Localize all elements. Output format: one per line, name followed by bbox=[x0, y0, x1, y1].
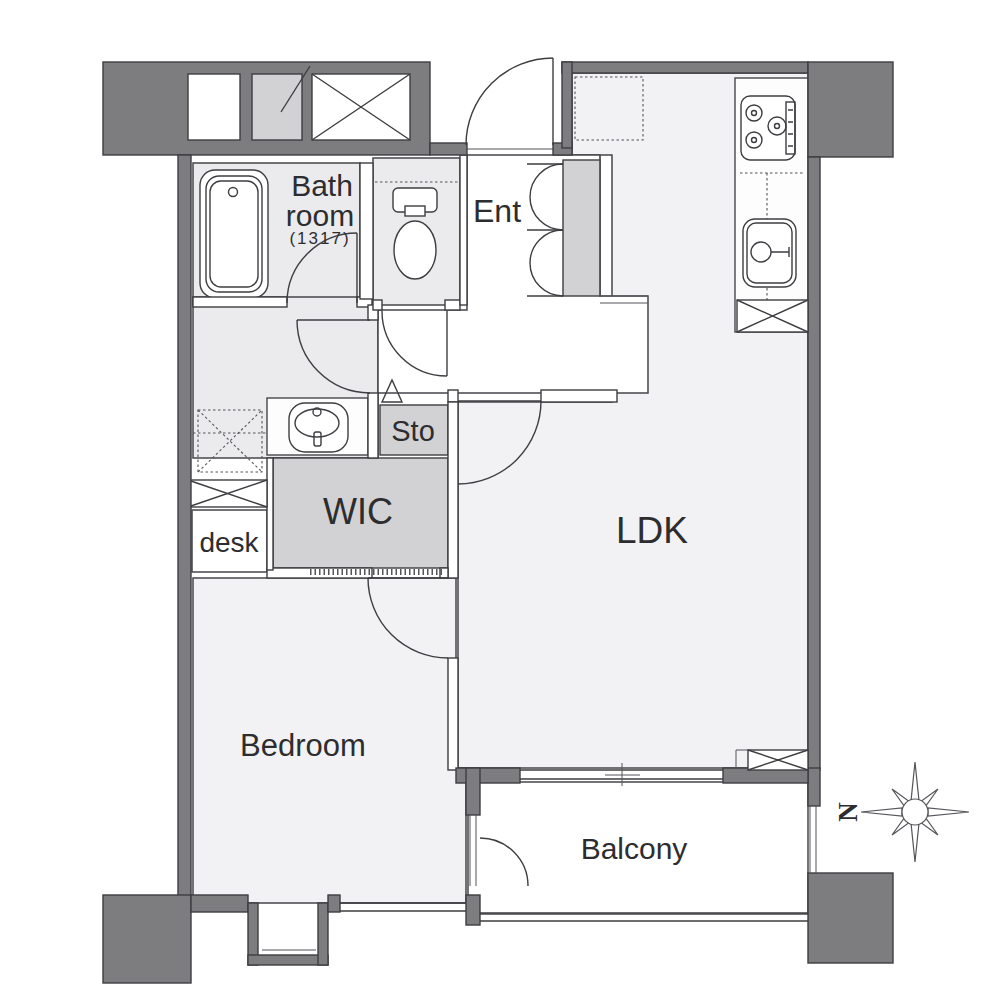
pipe-space-icon bbox=[252, 66, 310, 140]
desk-label: desk bbox=[199, 527, 259, 558]
bathroom-label-line2: room bbox=[286, 199, 354, 232]
bathtub-icon bbox=[200, 170, 268, 298]
washbasin-icon bbox=[267, 398, 368, 455]
balcony-label: Balcony bbox=[581, 832, 688, 865]
storage-label: Sto bbox=[391, 415, 435, 447]
entrance-door-arc bbox=[466, 58, 553, 145]
meter-box bbox=[188, 74, 240, 140]
right-wall bbox=[808, 157, 820, 770]
wic-label: WIC bbox=[323, 491, 393, 532]
kitchen-sink-icon bbox=[743, 219, 796, 287]
compass-north-label: N bbox=[833, 802, 863, 822]
kitchen-duct-box bbox=[737, 300, 808, 332]
left-wall bbox=[178, 155, 191, 910]
floor-plan-page: N Bath room (1317) Ent Sto WIC desk LDK … bbox=[0, 0, 1000, 1000]
ldk-label: LDK bbox=[616, 510, 688, 551]
bay-window-icon bbox=[248, 903, 328, 965]
pillar-top-right bbox=[808, 62, 893, 157]
balcony-side-panel bbox=[810, 806, 816, 873]
toilet-icon bbox=[393, 188, 437, 279]
fixed-window-box bbox=[188, 480, 267, 507]
shoe-cabinet bbox=[563, 160, 600, 296]
ldk-top-wall bbox=[562, 62, 808, 73]
entrance-label: Ent bbox=[473, 193, 521, 229]
bedroom-south-window bbox=[340, 903, 466, 911]
compass-icon: N bbox=[833, 762, 969, 862]
bathroom-label-line1: Bath bbox=[291, 169, 353, 202]
pillar-bottom-left bbox=[103, 895, 191, 983]
bedroom-label: Bedroom bbox=[240, 728, 366, 763]
balcony-partition-wall bbox=[466, 768, 480, 815]
pillar-bottom-right bbox=[808, 873, 893, 963]
bathroom-size-label: (1317) bbox=[289, 229, 350, 248]
elevator-shaft-icon bbox=[312, 74, 410, 140]
stove-icon bbox=[741, 96, 795, 160]
floor-plan-canvas: N Bath room (1317) Ent Sto WIC desk LDK … bbox=[0, 0, 1000, 1000]
